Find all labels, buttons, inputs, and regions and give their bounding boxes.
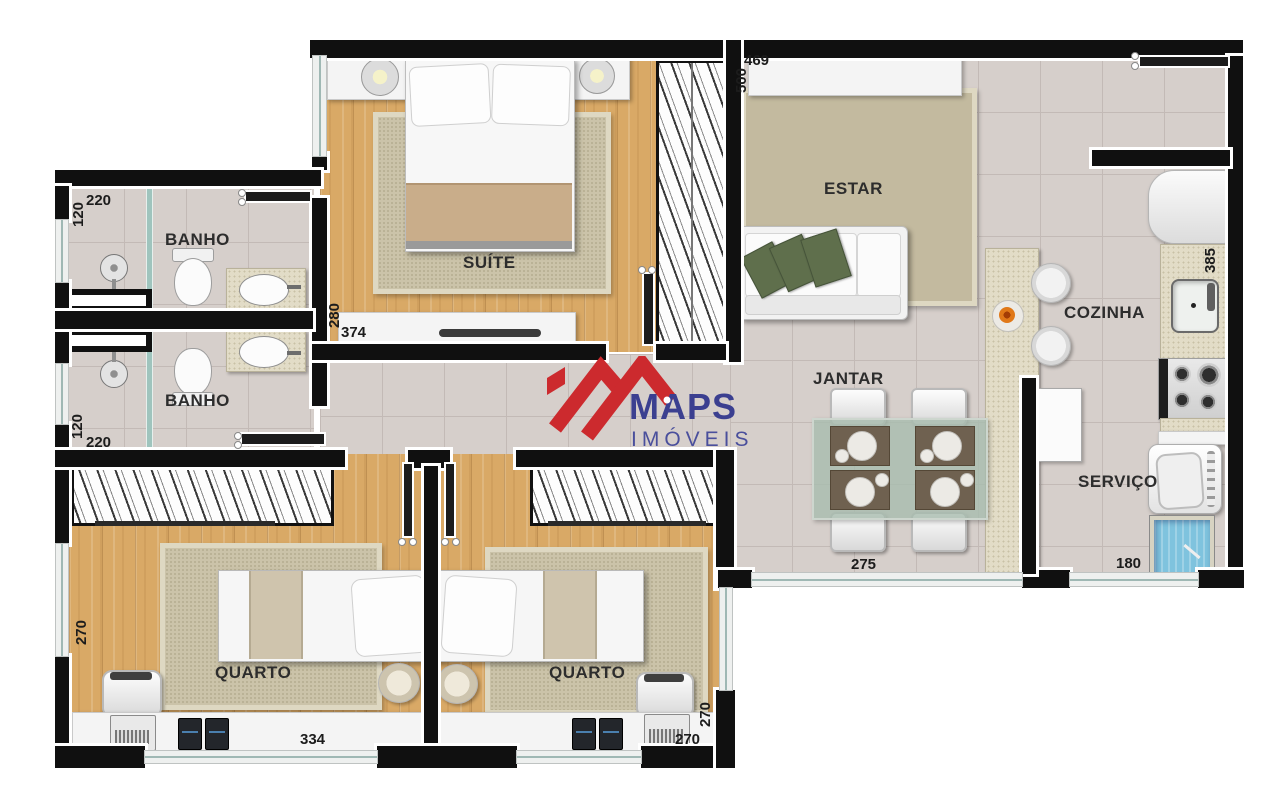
chair-back bbox=[110, 672, 152, 680]
door-hinge bbox=[238, 189, 246, 197]
door-hinge bbox=[441, 538, 449, 546]
suite-dresser bbox=[338, 312, 576, 347]
kitchen-sink bbox=[1171, 279, 1219, 333]
door-hinge bbox=[398, 538, 406, 546]
wall bbox=[55, 746, 145, 768]
pillow bbox=[491, 64, 571, 127]
dresser-tray bbox=[439, 329, 541, 337]
speaker-icon bbox=[599, 718, 623, 750]
dim-banho-bottom-width: 220 bbox=[86, 434, 111, 451]
cup bbox=[875, 473, 889, 487]
door-hinge bbox=[452, 538, 460, 546]
drain-dot bbox=[1191, 303, 1196, 308]
stove-icon bbox=[1158, 358, 1227, 420]
window bbox=[56, 220, 68, 282]
bed-blanket bbox=[543, 571, 597, 659]
burner bbox=[1199, 393, 1217, 411]
dim-jantar-width: 275 bbox=[851, 556, 876, 573]
washing-machine-icon bbox=[1148, 444, 1222, 514]
placemat bbox=[830, 426, 890, 466]
bedroom-left-wardrobe bbox=[71, 467, 334, 526]
logo-chimney bbox=[547, 367, 565, 395]
wall bbox=[312, 154, 327, 170]
wall bbox=[1022, 378, 1036, 574]
room-label-banho-bottom: BANHO bbox=[165, 391, 230, 411]
dim-banho-top-width: 220 bbox=[86, 192, 111, 209]
wall bbox=[310, 40, 1243, 58]
sink-basin bbox=[239, 274, 289, 306]
table-lamp-icon bbox=[579, 58, 615, 94]
shower-head-icon bbox=[100, 360, 128, 388]
single-bed bbox=[218, 570, 440, 662]
burner bbox=[1197, 363, 1221, 387]
dim-estar-height: 500 bbox=[733, 68, 750, 93]
room-label-banho-top: BANHO bbox=[165, 230, 230, 250]
window bbox=[517, 751, 641, 763]
wall bbox=[377, 746, 517, 768]
wardrobe-rail bbox=[691, 63, 693, 345]
wall bbox=[1198, 570, 1244, 588]
door-hinge bbox=[1131, 52, 1139, 60]
logo-pin-dot bbox=[664, 397, 671, 404]
wall bbox=[718, 570, 752, 588]
door-hinge bbox=[238, 198, 246, 206]
cup bbox=[835, 449, 849, 463]
sink-basin bbox=[239, 336, 289, 368]
door-suite bbox=[644, 274, 653, 344]
bed-footboard bbox=[406, 241, 572, 249]
room-label-quarto-left: QUARTO bbox=[215, 663, 291, 683]
door-hinge bbox=[1131, 62, 1139, 70]
bed-blanket bbox=[249, 571, 303, 659]
wall bbox=[312, 198, 327, 346]
placemat bbox=[915, 470, 975, 510]
plate bbox=[845, 477, 875, 507]
room-label-quarto-right: QUARTO bbox=[549, 663, 625, 683]
wall bbox=[55, 186, 69, 220]
door-quarto-left bbox=[404, 464, 412, 536]
wall bbox=[1092, 150, 1230, 166]
plate bbox=[847, 431, 877, 461]
faucet-icon bbox=[287, 351, 301, 355]
bar-stool bbox=[1031, 263, 1071, 303]
dim-quarto-left-height: 270 bbox=[73, 620, 90, 645]
door-hinge bbox=[638, 266, 646, 274]
washer-lid bbox=[1155, 451, 1205, 510]
pillow bbox=[350, 575, 429, 658]
chair-back bbox=[644, 674, 684, 682]
cup bbox=[920, 449, 934, 463]
sofa bbox=[738, 226, 908, 320]
double-bed bbox=[405, 58, 575, 252]
flower-icon bbox=[999, 307, 1015, 323]
logo-tagline-text: IMÓVEIS bbox=[631, 428, 754, 451]
dim-suite-width: 374 bbox=[341, 324, 366, 341]
entry-door bbox=[1140, 57, 1228, 66]
bed-blanket bbox=[406, 183, 572, 245]
single-bed bbox=[438, 570, 644, 662]
door-banho-top bbox=[246, 192, 310, 201]
keyboard bbox=[115, 730, 149, 744]
burner bbox=[1173, 365, 1191, 383]
counter-centerpiece bbox=[992, 300, 1024, 332]
door-banho-bottom bbox=[242, 434, 324, 444]
floor-plan: BANHO BANHO SUÍTE ESTAR COZINHA JANTAR S… bbox=[0, 0, 1280, 806]
room-label-jantar: JANTAR bbox=[813, 369, 884, 389]
wall bbox=[424, 466, 438, 758]
window bbox=[1070, 573, 1198, 586]
room-label-estar: ESTAR bbox=[824, 179, 883, 199]
bathroom-vanity bbox=[226, 330, 306, 372]
logo-brand-text: MAPS bbox=[629, 386, 737, 427]
pillow bbox=[440, 575, 517, 658]
door-hinge bbox=[648, 266, 656, 274]
desk-chair bbox=[102, 670, 162, 718]
toilet-bowl bbox=[174, 348, 212, 396]
window bbox=[313, 56, 326, 156]
wall bbox=[716, 450, 734, 588]
toilet-icon bbox=[170, 248, 214, 306]
bedroom-right-wardrobe bbox=[530, 467, 726, 526]
bar-stool bbox=[1031, 326, 1071, 366]
wardrobe-rail bbox=[95, 521, 275, 526]
window bbox=[720, 588, 732, 690]
bathroom-partition bbox=[62, 289, 152, 312]
shower-head-icon bbox=[100, 254, 128, 282]
dim-servico-width: 180 bbox=[1116, 555, 1141, 572]
stove-panel bbox=[1159, 359, 1168, 419]
plate bbox=[932, 431, 962, 461]
bathroom-vanity bbox=[226, 268, 306, 310]
plate bbox=[930, 477, 960, 507]
window bbox=[145, 751, 377, 763]
wardrobe-rail bbox=[548, 521, 706, 526]
tank-faucet-icon bbox=[1183, 544, 1200, 559]
window bbox=[56, 544, 68, 656]
speaker-icon bbox=[572, 718, 596, 750]
pouf bbox=[378, 663, 420, 703]
cup bbox=[960, 473, 974, 487]
bathroom-partition bbox=[62, 329, 152, 352]
wall bbox=[1228, 56, 1243, 590]
wall bbox=[716, 690, 735, 768]
pouf bbox=[436, 664, 478, 704]
wall bbox=[55, 424, 69, 544]
faucet-icon bbox=[287, 285, 301, 289]
room-label-suite: SUÍTE bbox=[463, 253, 516, 273]
servico-door-panel bbox=[1038, 388, 1082, 462]
dim-cozinha-height: 385 bbox=[1202, 248, 1219, 273]
placemat bbox=[915, 426, 975, 466]
wall bbox=[55, 311, 313, 329]
dining-table bbox=[812, 418, 988, 520]
burner bbox=[1173, 391, 1191, 409]
sofa-seat bbox=[857, 233, 901, 297]
dim-quarto-right-height: 270 bbox=[697, 702, 714, 727]
wall bbox=[55, 450, 345, 467]
door-hinge bbox=[234, 432, 242, 440]
maps-imoveis-logo: MAPS IMÓVEIS bbox=[545, 356, 795, 454]
faucet-icon bbox=[1207, 283, 1215, 311]
table-lamp-icon bbox=[361, 58, 399, 96]
sofa-back bbox=[745, 295, 901, 315]
kitchen-shelf bbox=[1158, 431, 1228, 445]
room-label-cozinha: COZINHA bbox=[1064, 303, 1145, 323]
placemat bbox=[830, 470, 890, 510]
door-hinge bbox=[234, 441, 242, 449]
wall bbox=[55, 170, 321, 186]
pillow bbox=[408, 63, 491, 127]
door-hinge bbox=[409, 538, 417, 546]
dim-quarto-right-width: 270 bbox=[675, 731, 700, 748]
toilet-bowl bbox=[174, 258, 212, 306]
dim-banho-top-height: 120 bbox=[70, 202, 87, 227]
fridge-icon bbox=[1148, 170, 1228, 244]
door-quarto-right bbox=[446, 464, 454, 536]
suite-wardrobe bbox=[656, 60, 726, 348]
speaker-icon bbox=[205, 718, 229, 750]
dim-banho-bottom-height: 120 bbox=[69, 414, 86, 439]
window bbox=[56, 364, 68, 424]
balcony-window bbox=[752, 573, 1022, 586]
washer-controls bbox=[1207, 451, 1215, 507]
dim-estar-width: 469 bbox=[744, 52, 769, 69]
speaker-icon bbox=[178, 718, 202, 750]
dim-quarto-left-width: 334 bbox=[300, 731, 325, 748]
room-label-servico: SERVIÇO bbox=[1078, 472, 1158, 492]
